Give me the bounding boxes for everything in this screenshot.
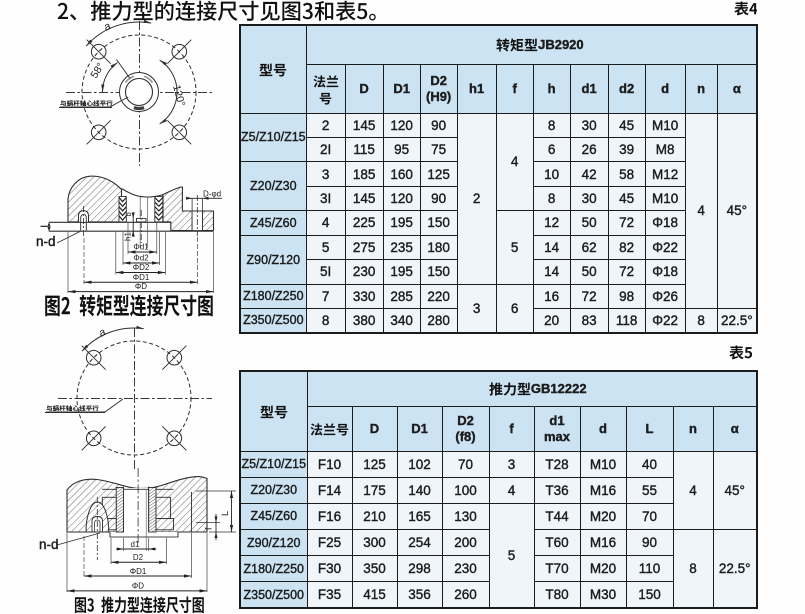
svg-text:D-φd: D-φd bbox=[203, 190, 221, 199]
svg-text:58°: 58° bbox=[88, 61, 107, 81]
svg-text:ΦD2: ΦD2 bbox=[133, 263, 150, 272]
svg-text:ΦD: ΦD bbox=[135, 282, 147, 291]
svg-text:Φd2: Φd2 bbox=[133, 254, 149, 263]
svg-text:Φd1: Φd1 bbox=[133, 243, 149, 252]
svg-text:d1: d1 bbox=[131, 540, 140, 549]
svg-text:L: L bbox=[220, 511, 230, 516]
svg-text:ΦD1: ΦD1 bbox=[133, 273, 150, 282]
svg-text:120°: 120° bbox=[170, 84, 187, 108]
svg-text:b: b bbox=[124, 212, 133, 216]
svg-text:ΦD: ΦD bbox=[132, 582, 144, 591]
svg-text:ΦD1: ΦD1 bbox=[130, 567, 147, 576]
svg-text:D2: D2 bbox=[133, 553, 144, 562]
